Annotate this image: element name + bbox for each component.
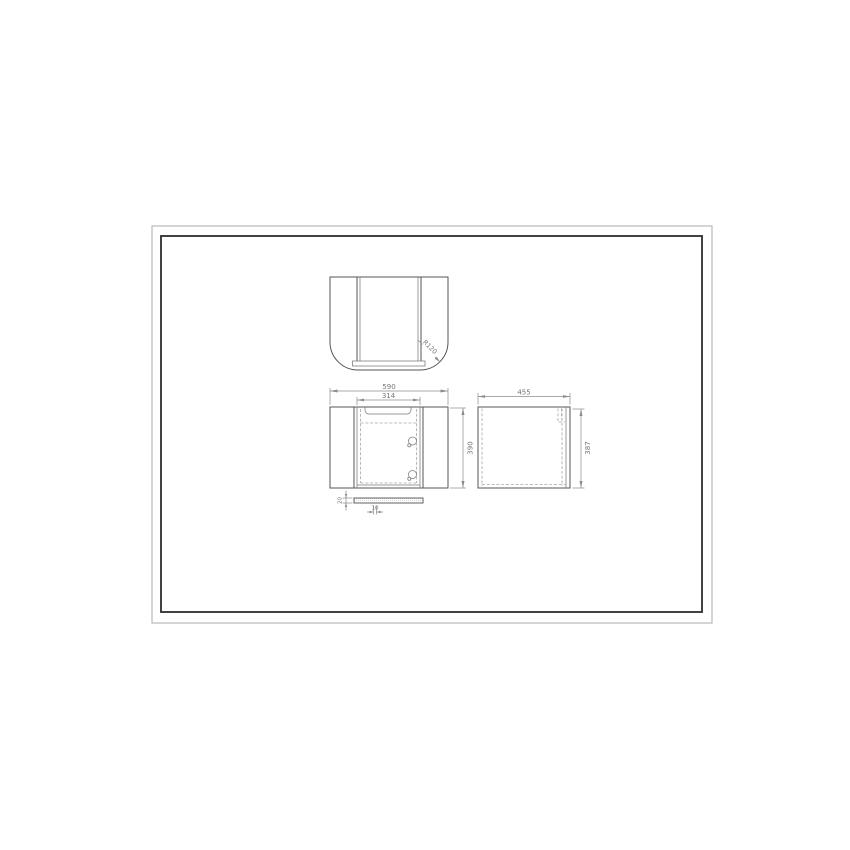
dim-front-height-label: 390 — [467, 441, 475, 454]
dim-door-width-label: 314 — [382, 392, 396, 400]
screenshot-canvas: R120 590 — [0, 0, 850, 850]
dim-panel-offset-label: 10 — [372, 506, 379, 512]
dim-overall-width-label: 590 — [382, 383, 395, 391]
cad-drawing: R120 590 — [0, 0, 850, 850]
dim-panel-thickness-label: 20 — [338, 497, 344, 504]
sheet-frame — [152, 226, 712, 623]
sheet-inner-border — [161, 236, 702, 612]
dim-depth-label: 455 — [517, 389, 530, 397]
dim-side-height-label: 387 — [584, 441, 592, 454]
panel-section — [354, 498, 423, 503]
